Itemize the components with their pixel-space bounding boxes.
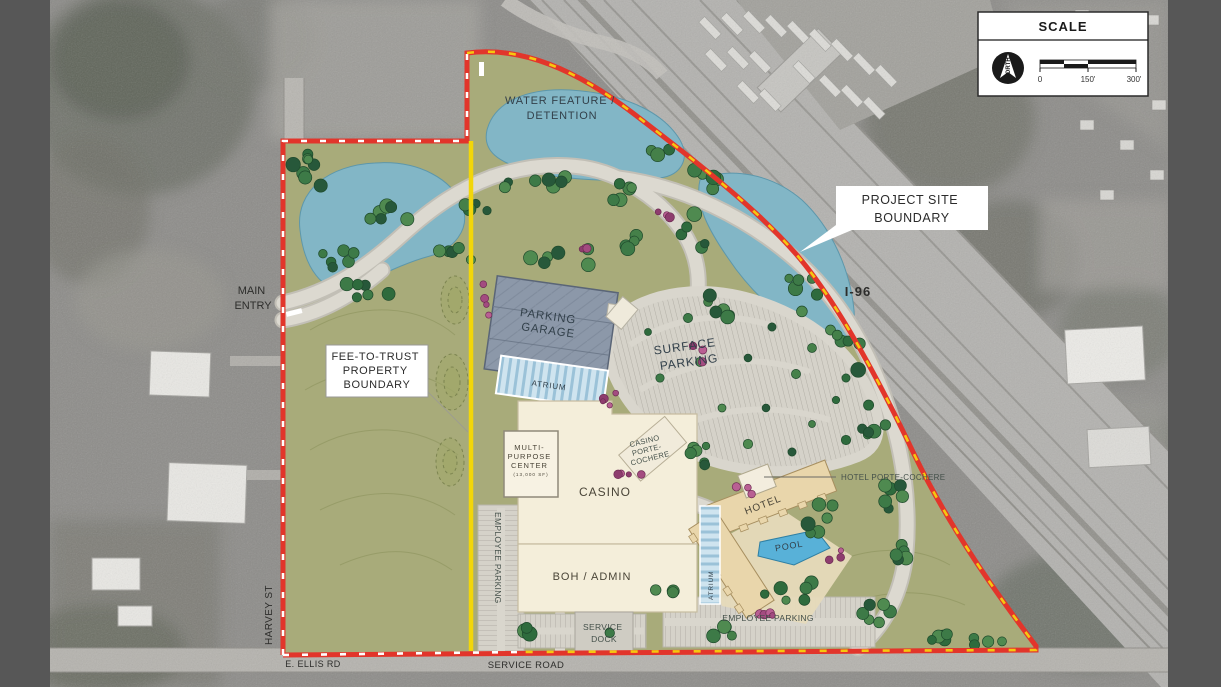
boh-admin-label: BOH / ADMIN xyxy=(553,571,632,583)
site-plan-map: WATER FEATURE / DETENTION PROJECT SITE B… xyxy=(0,0,1221,687)
hotel-porte-cochere-text: HOTEL PORTE-COCHERE xyxy=(841,473,945,482)
boundary-marker xyxy=(479,62,484,76)
employee-parking-west-label: EMPLOYEE PARKING xyxy=(493,512,503,604)
scale-tick-0: 0 xyxy=(1038,75,1043,84)
scale-tick-300: 300' xyxy=(1127,75,1142,84)
i96-label: I-96 xyxy=(845,284,871,299)
multi-purpose-center-label: MULTI- PURPOSE CENTER (13,000 SF) xyxy=(508,443,555,477)
letterbox-right xyxy=(1168,0,1221,687)
site-plan-screenshot: WATER FEATURE / DETENTION PROJECT SITE B… xyxy=(0,0,1221,687)
north-arrow-icon: NORTH xyxy=(992,52,1024,84)
fee-to-trust-text: FEE-TO-TRUST PROPERTY BOUNDARY xyxy=(331,351,422,391)
scale-panel: SCALE NORTH 0 150' 300' xyxy=(978,12,1148,96)
service-road-label: SERVICE ROAD xyxy=(488,660,564,671)
service-dock-area xyxy=(575,612,633,652)
harvey-st-label: HARVEY ST xyxy=(264,585,275,645)
letterbox-left xyxy=(0,0,50,687)
svg-text:NORTH: NORTH xyxy=(1006,57,1012,78)
e-ellis-rd-label: E. ELLIS RD xyxy=(285,659,341,669)
casino-label: CASINO xyxy=(579,485,631,499)
scale-tick-150: 150' xyxy=(1081,75,1096,84)
hotel-atrium-label: ATRIUM xyxy=(708,571,715,600)
employee-parking-south-label: EMPLOYEE PARKING xyxy=(722,613,814,623)
scale-title: SCALE xyxy=(1038,19,1087,34)
